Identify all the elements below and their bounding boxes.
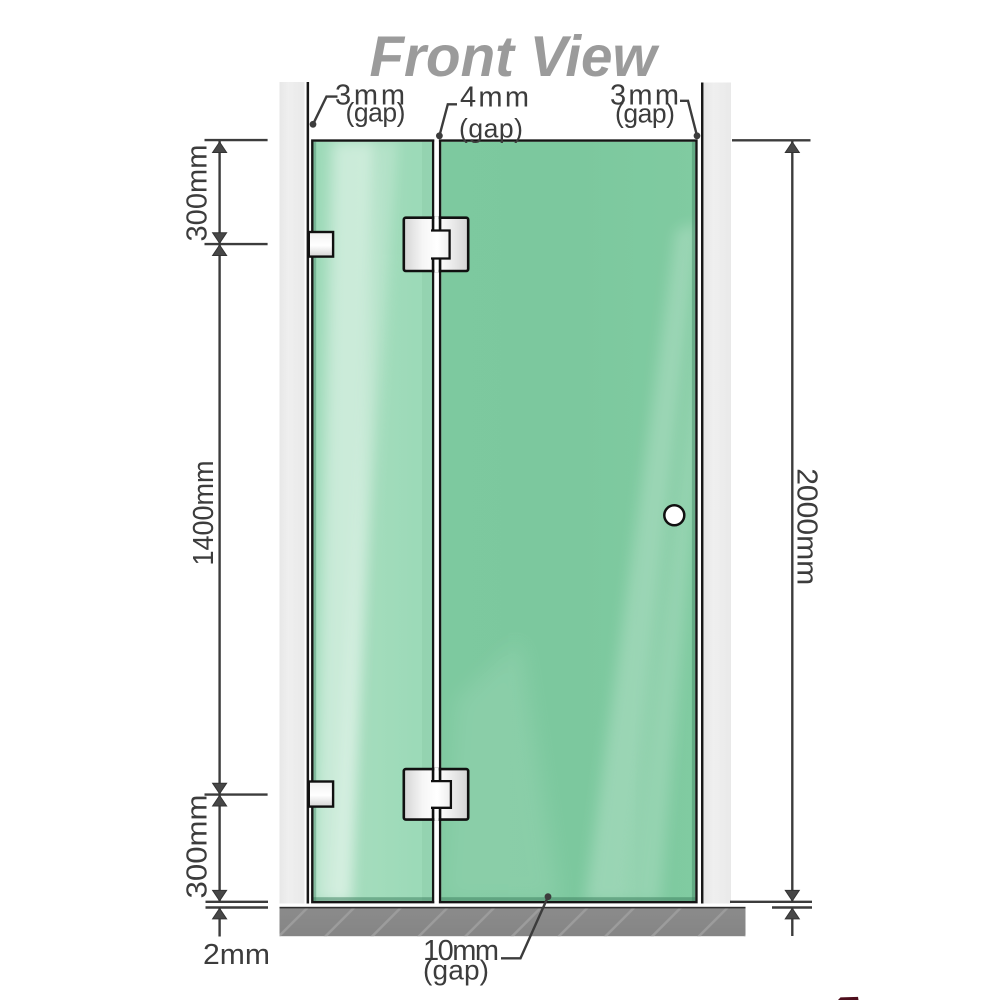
svg-text:4mm: 4mm [460,82,529,114]
svg-text:300mm: 300mm [182,145,214,242]
svg-text:2000mm: 2000mm [791,468,823,585]
svg-text:300mm: 300mm [182,795,214,899]
svg-text:(gap): (gap) [346,98,406,128]
svg-text:1400mm: 1400mm [188,461,220,566]
svg-text:(gap): (gap) [615,99,675,129]
svg-text:(gap): (gap) [459,114,523,144]
svg-text:(gap): (gap) [423,955,489,986]
svg-text:2mm: 2mm [203,939,270,971]
